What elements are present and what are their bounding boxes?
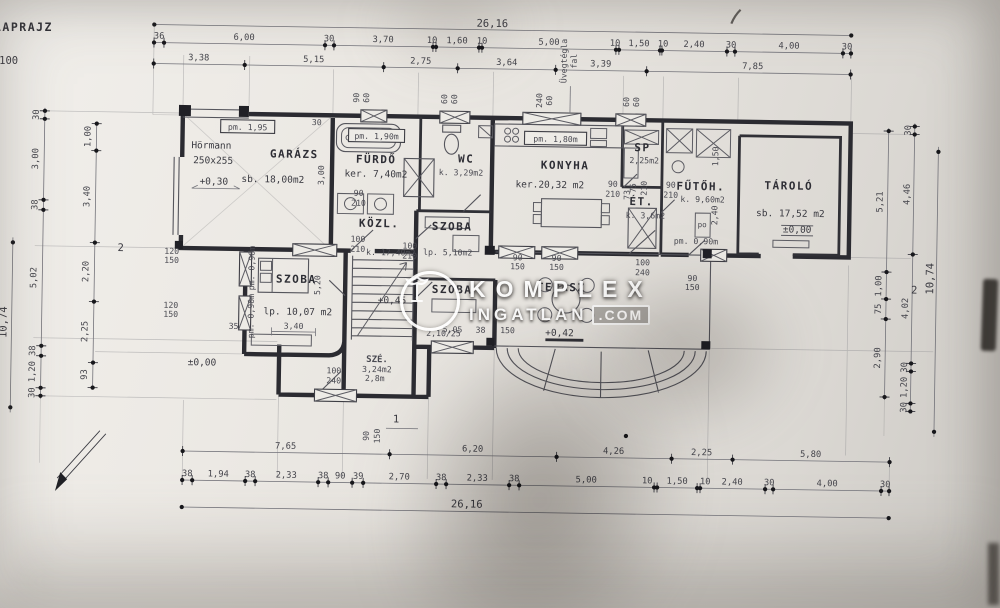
terrace-steps-arcs — [495, 348, 706, 399]
dim: 1,20 — [28, 361, 38, 382]
dim: 6,20 — [462, 444, 483, 454]
window-spec: 90 — [351, 93, 361, 103]
window-spec: 60 — [544, 96, 554, 106]
room-vestibule-pm: 2,8m — [365, 373, 385, 383]
storage-level: ±0,00 — [783, 224, 812, 235]
lowerroom-dim3: 150 — [500, 325, 515, 335]
section-mark-1-line — [386, 428, 418, 429]
dim: 4,02 — [901, 298, 911, 319]
dim: 5,21 — [875, 191, 885, 212]
room-storage-label: TÁROLÓ — [764, 179, 813, 193]
room-wc-area: k. 3,29m2 — [439, 167, 484, 178]
garage-pm: pm. 1,95 — [228, 122, 268, 133]
dim: 30 — [899, 402, 909, 413]
dim: 38 — [28, 345, 38, 356]
stair-note: 2,10/25 — [426, 328, 461, 339]
room-bathroom-label: FÜRDŐ — [356, 152, 397, 167]
dim-top-total: 26,16 — [476, 18, 508, 30]
plan-title: FSZT. ALAPRAJZ — [0, 20, 53, 34]
window-spec: 60 — [449, 94, 459, 104]
dim: 2,20 — [81, 261, 91, 282]
dim: 2,25 — [691, 448, 712, 458]
dresser — [251, 334, 311, 346]
room-leftroom-width: 3,40 — [284, 321, 304, 331]
entry-level: +0,45 — [378, 295, 407, 306]
room-midroom-area: lp. 5,10m2 — [423, 247, 473, 258]
dim: 5,02 — [29, 267, 39, 288]
window-spec: 60 — [631, 97, 641, 107]
terrace-level-underline — [545, 340, 583, 341]
dim: 93 — [80, 369, 90, 380]
window-spec: 150 — [163, 309, 178, 319]
window-spec: 150 — [685, 282, 700, 292]
bathroom-pm: pm. 1,90m — [354, 131, 399, 142]
garage-height-dim: 3,00 — [316, 165, 326, 185]
dim: 2,40 — [683, 40, 704, 50]
window-spec: 240 — [534, 93, 544, 108]
door-spec: 210 — [351, 198, 366, 208]
door-spec: 240 — [635, 267, 650, 277]
dim: 3,70 — [372, 35, 393, 45]
room-bathroom-area: ker. 7,40m2 — [344, 169, 407, 181]
dim: 1,60 — [446, 36, 467, 46]
dim: 2,33 — [467, 473, 488, 483]
dim: 30 — [880, 480, 891, 490]
room-garage-area: sb. 18,00m2 — [241, 174, 304, 186]
room-kitchen-label: KONYHA — [541, 159, 590, 173]
dim: 36 — [154, 32, 165, 42]
dim: 4,00 — [778, 41, 799, 51]
door-spec: 100 — [326, 365, 341, 375]
dim: 2,25 — [80, 321, 90, 342]
window-spec: 150 — [372, 429, 382, 444]
leftroom-window-pm: pm. 0,96m — [246, 246, 257, 291]
dim: 6,00 — [233, 33, 254, 43]
room-dining-area: k. 3,6m2 — [626, 210, 666, 221]
dim: 38 — [318, 471, 329, 481]
dim: 10 — [610, 39, 621, 49]
terrace-outline — [494, 252, 710, 349]
dim: 1,50 — [628, 39, 649, 49]
dim: 38 — [182, 469, 193, 479]
kitchen-pm: pm. 1,80m — [533, 134, 578, 145]
window-spec: 150 — [164, 255, 179, 265]
terrace-level: +0,42 — [545, 328, 574, 339]
door-spec: 100 — [402, 240, 417, 250]
forecourt-level: ±0,00 — [188, 357, 217, 368]
dim: 38 — [245, 470, 256, 480]
pen-mark — [731, 10, 740, 24]
dim: 7,65 — [275, 441, 296, 451]
dim: 4,00 — [816, 479, 837, 489]
lowerroom-dim2: 38 — [476, 325, 486, 335]
dim: 5,00 — [576, 475, 597, 485]
leftroom-window-pm: pm. 0,96m — [245, 294, 256, 339]
dimension-ticks — [34, 36, 921, 497]
room-lowerroom-label: SZOBA — [432, 283, 473, 297]
section-mark-1: 1 — [393, 413, 400, 425]
room-kitchen-area: ker.20,32 m2 — [515, 179, 584, 191]
dim: 1,00 — [874, 275, 884, 296]
section-mark-2: 2 — [118, 242, 125, 254]
dim: 30 — [842, 42, 853, 52]
dim: 39 — [353, 472, 364, 482]
pump-label: po — [698, 220, 708, 229]
dim: 10 — [477, 37, 488, 47]
door-spec: 90 — [608, 179, 618, 189]
dim: 4,26 — [603, 447, 624, 457]
door-spec: 73 — [622, 190, 632, 200]
window-spec: 150 — [549, 262, 564, 272]
dim: 10 — [658, 39, 669, 49]
dim: 5,00 — [538, 38, 559, 48]
boiler-dim-h: 2,40 — [709, 205, 719, 225]
door-spec: 210 — [639, 181, 649, 196]
dim: 3,40 — [82, 186, 92, 207]
plan-scale: M 1:100 — [0, 55, 18, 67]
dim: 2,75 — [410, 57, 431, 67]
door-spec: 100 — [350, 234, 365, 244]
dim: 10 — [427, 36, 438, 46]
plan-sheet: 26,16 36 6,00 30 3,70 10 1,60 10 5,00 10… — [0, 0, 941, 519]
window-spec: 90 — [361, 431, 371, 441]
window-spec: 60 — [439, 94, 449, 104]
garage-door-leaf — [173, 157, 179, 235]
dim: 7,85 — [742, 62, 763, 72]
room-leftroom-area: lp. 10,07 m2 — [263, 306, 332, 318]
dim: 5,15 — [303, 55, 324, 65]
room-hall-label: KÖZL. — [359, 216, 400, 231]
dim: 2,33 — [276, 470, 297, 480]
room-dining-label: ÉT. — [629, 195, 654, 208]
leftroom-height-dim: 5,20 — [312, 275, 322, 295]
section-mark-2: 2 — [911, 284, 918, 296]
dim: 10 — [642, 476, 653, 486]
wall-dim: 30 — [312, 117, 322, 127]
dim: 3,00 — [31, 148, 41, 169]
dim-bottom-total: 26,16 — [451, 498, 483, 510]
dim: 10 — [700, 477, 711, 487]
room-pantry-area: 2,25m2 — [629, 155, 659, 165]
door-spec: 240 — [326, 375, 341, 385]
room-leftroom-label: SZOBA — [276, 272, 317, 286]
garage-door-size: 250x255 — [193, 155, 233, 167]
door-spec: 90 — [354, 188, 364, 198]
dim: 30 — [32, 109, 42, 120]
window-spec: 60 — [621, 97, 631, 107]
dim: 1,50 — [666, 477, 687, 487]
door-spec: 100 — [635, 257, 650, 267]
dim: 38 — [509, 474, 520, 484]
garage-level: +0,30 — [199, 176, 228, 187]
dim: 30 — [904, 125, 914, 136]
room-garage-label: GARÁZS — [270, 147, 319, 161]
room-terrace-label: TERASZ — [537, 281, 586, 295]
dim-right-total: 10,74 — [924, 263, 936, 295]
dim: 1,00 — [83, 126, 93, 147]
dim: 30 — [900, 362, 910, 373]
dim: 2,70 — [389, 472, 410, 482]
leader-arrow — [55, 430, 106, 492]
dim: 4,46 — [903, 184, 913, 205]
dim: 38 — [30, 199, 40, 210]
dim: 3,38 — [188, 53, 209, 63]
dim: 30 — [324, 34, 335, 44]
door-spec: 210 — [663, 190, 678, 200]
sofa-lower-room — [432, 299, 476, 313]
glass-wall-note2: fal — [569, 54, 579, 69]
scanned-floorplan-photo: FSZT. ALAPRAJZ M 1:100 — [0, 0, 1000, 608]
window-spec: 60 — [361, 93, 371, 103]
door-spec: 90 — [666, 180, 676, 190]
dim: 38 — [436, 473, 447, 483]
toilet — [442, 125, 460, 154]
door-spec: 210 — [402, 250, 417, 260]
room-boiler-area: k. 9,60m2 — [680, 194, 725, 205]
window-spec: 150 — [510, 261, 525, 271]
garage-door-brand: Hörmann — [191, 140, 231, 152]
boiler-pm: pm. 0,90m — [674, 236, 719, 247]
door-spec: 210 — [350, 244, 365, 254]
dim-left-total: 10,74 — [0, 306, 10, 338]
dim: 2,90 — [873, 347, 883, 368]
room-pantry-label: SP — [634, 141, 650, 154]
dim: 2,40 — [721, 478, 742, 488]
dim: 3,64 — [496, 58, 517, 68]
glass-wall-note: Üvegtégla — [558, 39, 569, 84]
room-storage-area: sb. 17,52 m2 — [756, 208, 825, 220]
dim: 1,20 — [900, 377, 910, 398]
storage-step — [773, 240, 809, 248]
boiler-dim-w: 1,50 — [710, 146, 720, 166]
kitchen-table — [533, 199, 609, 228]
dim: 5,80 — [800, 450, 821, 460]
dim: 1,94 — [208, 469, 229, 479]
room-boiler-label: FŰTŐH. — [676, 179, 725, 194]
floorplan-drawing: FSZT. ALAPRAJZ M 1:100 — [0, 0, 1000, 608]
dim: 30 — [726, 41, 737, 51]
wall-dim-35: 35 — [229, 321, 239, 331]
room-wc-label: WC — [458, 152, 474, 165]
room-midroom-label: SZOBA — [432, 220, 473, 234]
door-spec: 210 — [605, 189, 620, 199]
dim: 30 — [764, 478, 775, 488]
dim: 30 — [27, 387, 37, 398]
dim: 75 — [874, 304, 884, 315]
dim: 3,39 — [590, 59, 611, 69]
dim: 90 — [335, 471, 346, 481]
